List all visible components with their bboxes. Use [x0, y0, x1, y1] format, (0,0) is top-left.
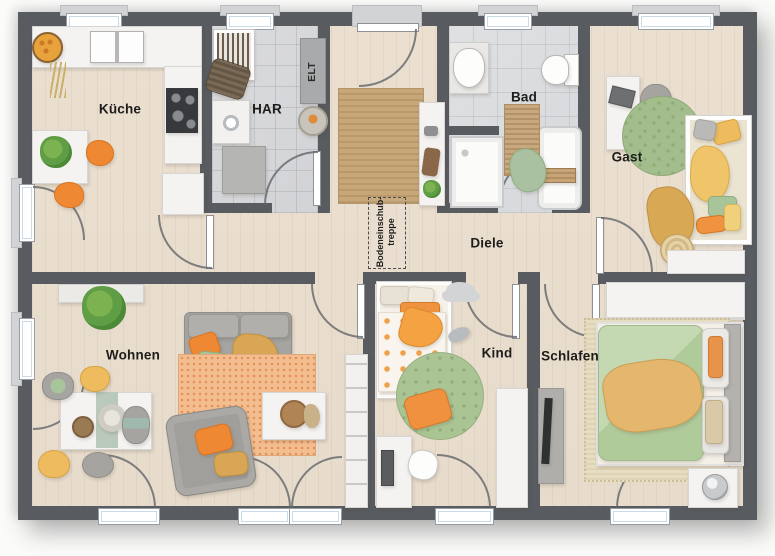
kitchen-plant: [40, 136, 72, 168]
jute-rug: [338, 88, 424, 204]
kitchen-chair: [86, 140, 114, 166]
toilet-bowl: [541, 55, 569, 85]
window-bad-top: [484, 13, 532, 30]
bookshelf: [345, 354, 368, 508]
table-bowl: [72, 416, 94, 438]
gast-pillow: [692, 118, 717, 142]
armchair-throw: [213, 450, 249, 477]
dry-plant-deco: [304, 404, 320, 428]
kitchen-sink: [90, 31, 144, 63]
dining-chair-yellow: [80, 366, 110, 392]
label-gast: Gast: [612, 150, 643, 165]
schlafen-pillow-tan: [705, 400, 723, 444]
loft-ladder-line2: treppe: [386, 218, 396, 246]
kind-monitor: [381, 450, 394, 486]
wohnen-plant: [82, 286, 126, 330]
terrace-door-wohnen-1: [98, 508, 160, 525]
label-wohnen: Wohnen: [106, 348, 160, 363]
nightstand-lamp: [702, 474, 728, 500]
wall-mid-1: [32, 272, 315, 284]
terrace-door-wohnen-2b: [289, 508, 342, 525]
label-har: HAR: [252, 102, 282, 117]
cloud-shelf: [446, 282, 476, 302]
loft-ladder-line1: Bodeneinschub-: [375, 197, 385, 268]
terrace-door-kind: [435, 508, 494, 525]
washing-machine: [212, 100, 250, 144]
window-gast-top: [638, 13, 714, 30]
terrace-door-schlafen: [610, 508, 670, 525]
terrace-door-wohnen-2a: [238, 508, 291, 525]
window-har-top: [226, 13, 274, 30]
entry-plant: [423, 180, 441, 198]
bath-sink: [453, 48, 485, 88]
gast-dresser: [667, 250, 745, 274]
wall-har-bottom: [212, 203, 272, 213]
har-basket: [298, 106, 328, 136]
floor-plan: Bodeneinschub- treppe: [0, 0, 775, 556]
kind-wardrobe: [496, 388, 528, 508]
label-diele: Diele: [470, 236, 503, 251]
label-elt: ELT: [306, 62, 318, 82]
label-schlafen: Schlafen: [541, 349, 599, 364]
dining-chair-grey: [42, 372, 74, 400]
hanging-deco: [50, 62, 66, 98]
schlafen-wardrobe: [606, 282, 745, 320]
kitchen-chair: [54, 182, 84, 208]
schlafen-pillow-orange: [708, 336, 723, 378]
gast-pillow: [724, 204, 741, 231]
fruit-bowl: [32, 32, 63, 63]
wall-shower-stub: [449, 126, 499, 135]
dining-chair-grey: [122, 406, 150, 444]
label-kind: Kind: [482, 346, 513, 361]
utility-box: [222, 146, 266, 194]
kitchen-fridge: [162, 173, 204, 215]
window-wohnen-left: [19, 318, 35, 380]
loft-ladder-label: Bodeneinschub- treppe: [375, 197, 397, 268]
dining-chair-grey: [82, 452, 114, 478]
entry-shoes: [424, 126, 438, 136]
shower-tray: [450, 136, 504, 208]
label-kueche: Küche: [99, 102, 141, 117]
dining-chair-yellow: [38, 450, 70, 478]
kitchen-cooktop: [166, 88, 198, 133]
label-bad: Bad: [511, 90, 537, 105]
